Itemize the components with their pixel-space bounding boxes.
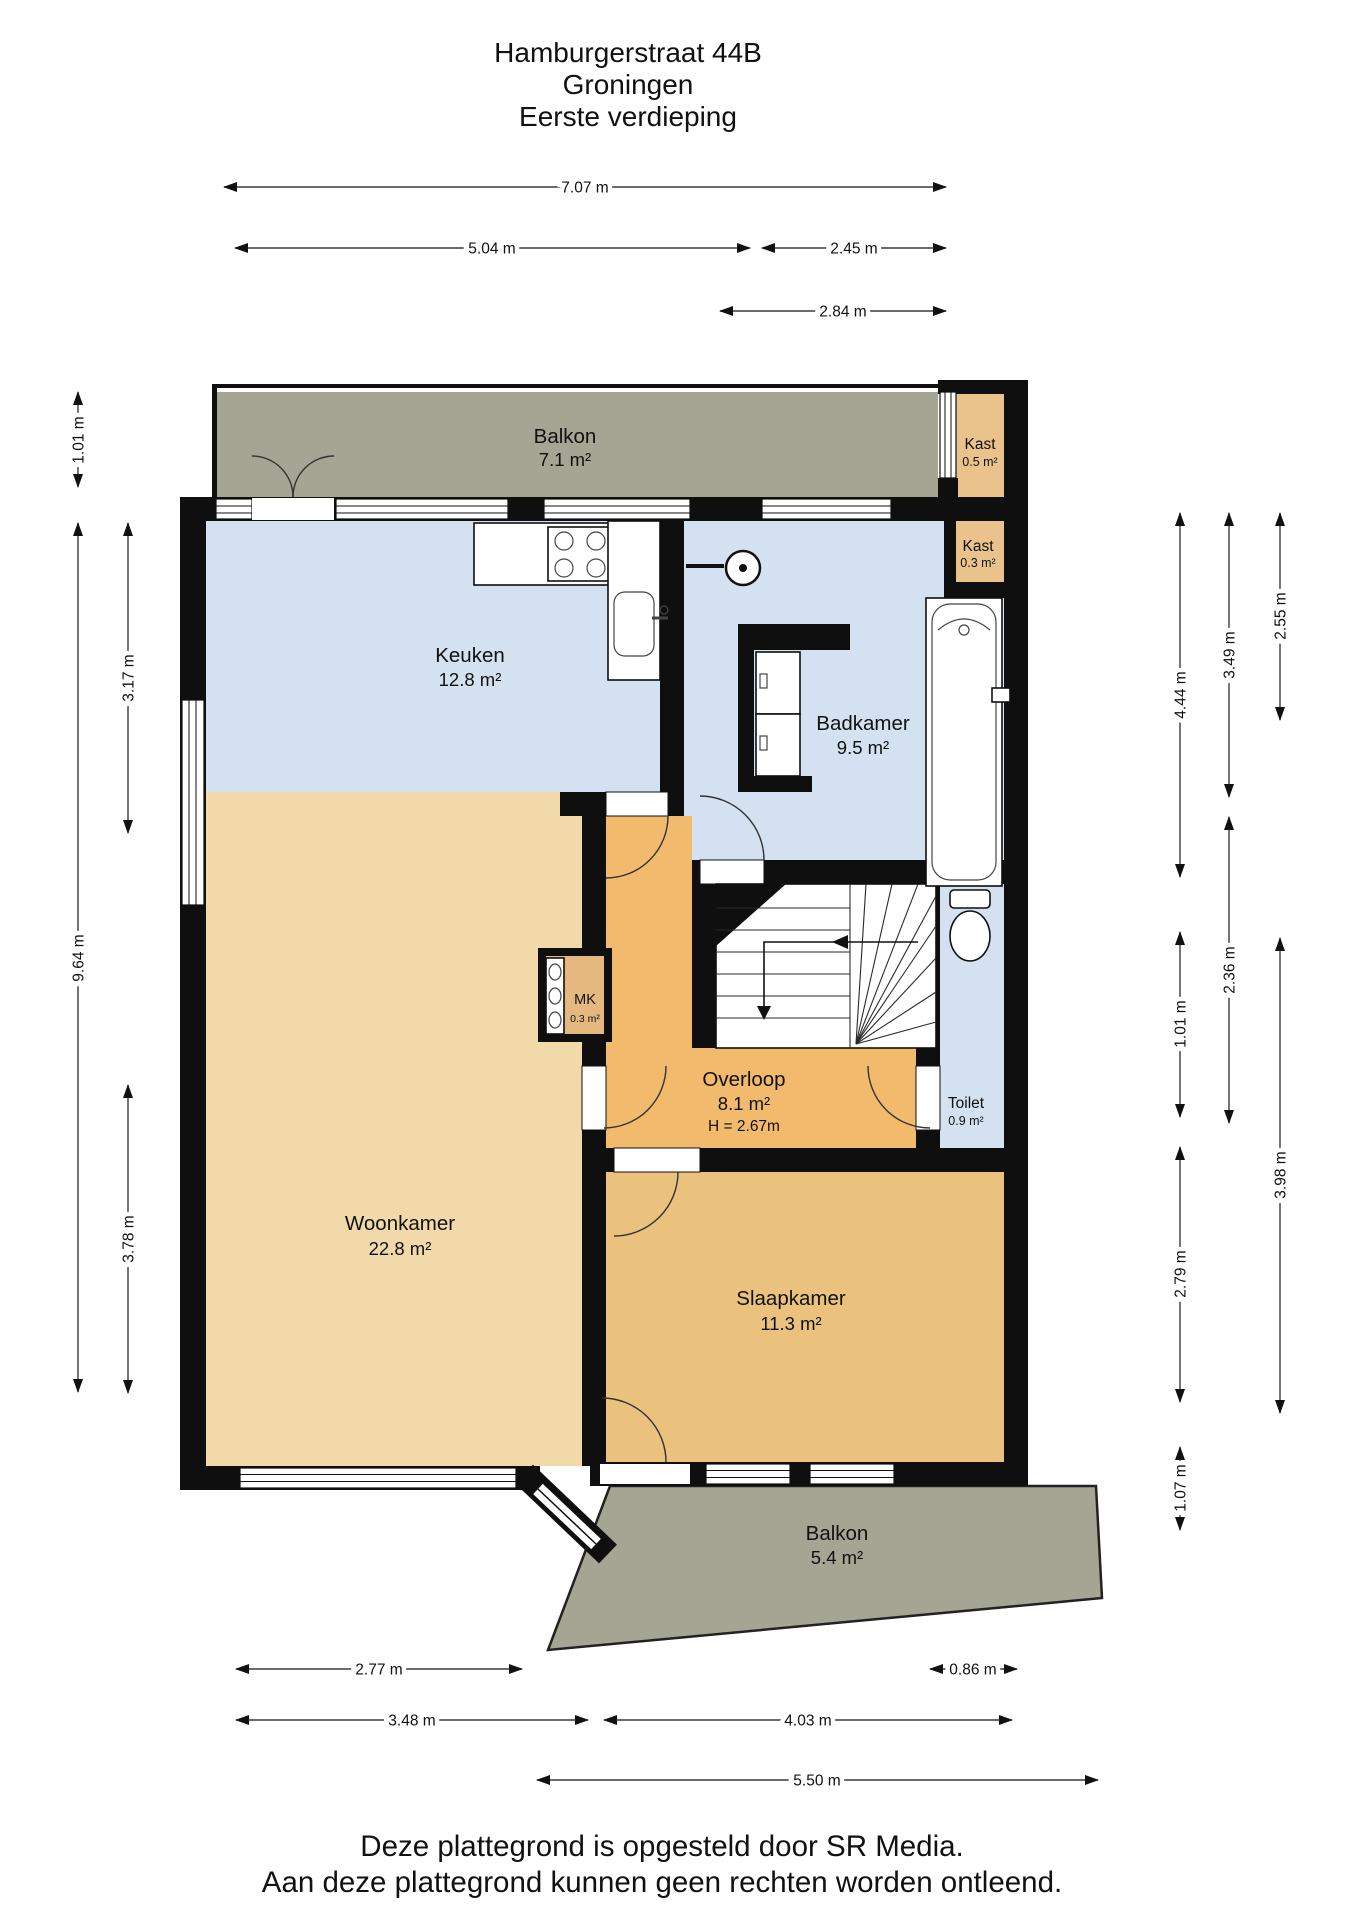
slaapkamer-door-opening: [614, 1148, 700, 1172]
badkamer-label: Badkamer: [816, 712, 910, 735]
balkon-bottom-area: 5.4 m²: [811, 1547, 863, 1568]
left-wall-window: [182, 700, 204, 905]
slaapkamer-balkon-door-opening: [600, 1464, 690, 1484]
toilet-left-wall-stub: [916, 1130, 940, 1148]
dim-label: 3.49 m: [1222, 631, 1239, 678]
dim-right-3: 2.79 m: [1173, 1147, 1190, 1402]
balkon-top-railing: [212, 384, 938, 388]
slaapkamer-label: Slaapkamer: [736, 1287, 846, 1310]
dim-label: 5.50 m: [793, 1773, 840, 1790]
dim-label: 3.48 m: [388, 1713, 435, 1730]
dim-label: 1.01 m: [1173, 1000, 1190, 1047]
dim-label: 0.86 m: [949, 1662, 996, 1679]
dim-top-3: 2.45 m: [762, 241, 946, 258]
dim-bottom-2: 0.86 m: [930, 1662, 1017, 1679]
slaapkamer-window-1: [706, 1464, 790, 1484]
footer-disclaimer: Deze plattegrond is opgesteld door SR Me…: [262, 1830, 1062, 1899]
dryer-icon: [756, 714, 800, 776]
dim-label: 3.17 m: [121, 654, 138, 701]
kast-top-label: Kast: [964, 436, 996, 453]
title-line1: Hamburgerstraat 44B: [494, 37, 762, 68]
woonkamer-bottom-window: [240, 1468, 516, 1488]
floorplan-page: Hamburgerstraat 44B Groningen Eerste ver…: [0, 0, 1358, 1920]
woonkamer-overloop-wall-b: [582, 1042, 606, 1066]
dim-right-4: 1.07 m: [1173, 1447, 1190, 1530]
mk-label: MK: [574, 992, 596, 1008]
woonkamer-overloop-wall-a: [582, 816, 606, 948]
kast-top-area: 0.5 m²: [962, 455, 997, 469]
dim-label: 2.55 m: [1273, 592, 1290, 639]
room-woonkamer-floor: [206, 792, 582, 1466]
badkamer-door-opening: [700, 860, 764, 884]
title-line3: Eerste verdieping: [519, 101, 737, 132]
toilet-area: 0.9 m²: [948, 1114, 983, 1128]
dim-label: 2.45 m: [830, 241, 877, 258]
washer-nook-bottom-wall: [738, 776, 812, 792]
balkon-left-railing: [212, 384, 217, 497]
room-overloop-floor-a: [606, 816, 692, 1148]
washer-nook-top-wall: [738, 624, 850, 650]
kast-right-label: Kast: [962, 538, 994, 555]
dim-top-2: 5.04 m: [235, 241, 750, 258]
dim-bottom-5: 5.50 m: [537, 1773, 1098, 1790]
toilet-door-opening: [916, 1066, 940, 1130]
dim-bottom-1: 2.77 m: [236, 1662, 522, 1679]
dim-label: 2.79 m: [1173, 1250, 1190, 1297]
bathtub-handle: [992, 688, 1010, 702]
washer-nook-left-wall: [738, 650, 754, 776]
toilet-label: Toilet: [948, 1095, 985, 1112]
facade-window-2: [336, 499, 508, 519]
staircase: [716, 884, 936, 1048]
dim-bottom-4: 4.03 m: [604, 1713, 1012, 1730]
dim-left-4: 3.78 m: [121, 1085, 138, 1393]
bathtub-icon: [926, 598, 1002, 886]
dim-bottom-3: 3.48 m: [236, 1713, 588, 1730]
woonkamer-label: Woonkamer: [345, 1212, 455, 1235]
dim-label: 5.04 m: [468, 241, 515, 258]
page-title: Hamburgerstraat 44B Groningen Eerste ver…: [494, 37, 762, 132]
right-outer-wall: [1004, 380, 1028, 1486]
keuken-area: 12.8 m²: [439, 669, 502, 690]
washer-icon: [756, 652, 800, 714]
dim-right-8: 3.98 m: [1273, 938, 1290, 1413]
woonkamer-area: 22.8 m²: [369, 1238, 432, 1259]
keuken-overloop-door-opening: [606, 792, 668, 816]
facade-window-1: [216, 499, 252, 519]
keuken-badkamer-wall: [660, 521, 684, 816]
dim-right-6: 2.36 m: [1222, 817, 1239, 1123]
dim-right-1: 4.44 m: [1173, 513, 1190, 877]
dim-left-1: 1.01 m: [71, 392, 88, 487]
dim-label: 1.07 m: [1173, 1464, 1190, 1511]
facade-window-3: [544, 499, 690, 519]
dim-label: 4.03 m: [784, 1713, 831, 1730]
woonkamer-slaapkamer-wall: [582, 1172, 606, 1466]
dim-label: 4.44 m: [1173, 671, 1190, 718]
balkon-top-label: Balkon: [534, 425, 597, 448]
slaapkamer-window-2: [810, 1464, 894, 1484]
dim-top-4: 2.84 m: [720, 304, 946, 321]
keuken-label: Keuken: [435, 644, 505, 667]
room-balkon-bottom-floor: [548, 1486, 1102, 1650]
dim-label: 3.98 m: [1273, 1151, 1290, 1198]
toilet-tank-icon: [950, 890, 990, 908]
stairs-left-wall: [692, 884, 716, 1048]
dim-label: 9.64 m: [71, 934, 88, 981]
facade-window-4: [762, 499, 891, 519]
slaapkamer-area: 11.3 m²: [760, 1313, 821, 1334]
overloop-height: H = 2.67m: [708, 1118, 780, 1135]
dim-label: 2.77 m: [355, 1662, 402, 1679]
dim-label: 7.07 m: [561, 180, 608, 197]
dim-label: 2.84 m: [819, 304, 866, 321]
mk-area: 0.3 m²: [570, 1013, 600, 1025]
kast-right-bottom-wall: [944, 582, 1004, 598]
dim-label: 2.36 m: [1222, 946, 1239, 993]
dim-right-7: 2.55 m: [1273, 513, 1290, 720]
overloop-label: Overloop: [702, 1068, 785, 1091]
kast-right-area: 0.3 m²: [960, 556, 995, 570]
kast-corner-block: [938, 478, 958, 497]
balkon-door-opening: [252, 498, 334, 520]
toilet-bowl-icon: [950, 911, 990, 961]
dim-right-2: 1.01 m: [1173, 932, 1190, 1117]
dim-label: 1.01 m: [71, 416, 88, 463]
balkon-kast-glazing: [940, 392, 956, 478]
balkon-bottom-label: Balkon: [806, 1522, 869, 1545]
dim-left-2: 9.64 m: [71, 523, 88, 1392]
overloop-area: 8.1 m²: [718, 1093, 770, 1114]
kast-right-left-wall: [944, 521, 956, 582]
dim-left-3: 3.17 m: [121, 523, 138, 833]
dim-right-5: 3.49 m: [1222, 513, 1239, 797]
badkamer-area: 9.5 m²: [837, 737, 889, 758]
footer-line1: Deze plattegrond is opgesteld door SR Me…: [360, 1830, 963, 1863]
footer-line2: Aan deze plattegrond kunnen geen rechten…: [262, 1866, 1062, 1899]
floor-plan-svg: Hamburgerstraat 44B Groningen Eerste ver…: [0, 0, 1358, 1920]
dim-top-1: 7.07 m: [224, 180, 946, 197]
dim-label: 3.78 m: [121, 1215, 138, 1262]
left-outer-wall: [180, 497, 206, 1490]
woonkamer-door-opening: [582, 1066, 606, 1130]
balkon-top-area: 7.1 m²: [539, 449, 591, 470]
title-line2: Groningen: [563, 69, 694, 100]
